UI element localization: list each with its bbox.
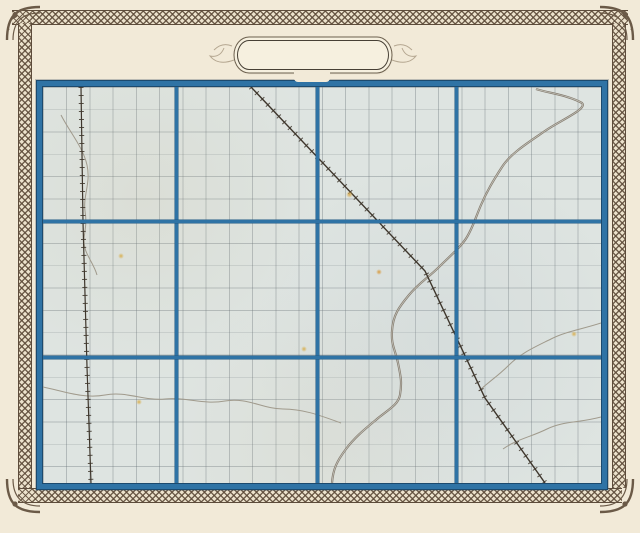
frame-band-left bbox=[18, 23, 32, 488]
frame-band-right bbox=[612, 23, 626, 488]
railroad-west-ties bbox=[81, 87, 91, 483]
map-canvas bbox=[42, 86, 602, 484]
corner-flourish-top-right bbox=[598, 4, 636, 42]
title-flourish-right bbox=[390, 38, 420, 68]
rivers-and-railroads bbox=[43, 87, 601, 483]
map-year bbox=[294, 70, 330, 82]
township-divider bbox=[455, 87, 458, 483]
creek bbox=[61, 115, 97, 275]
corner-flourish-top-left bbox=[4, 4, 42, 42]
title-flourish-left bbox=[206, 38, 236, 68]
township-divider bbox=[43, 220, 601, 223]
township-divider bbox=[43, 356, 601, 359]
atlas-page: { "title": { "prefix": "MAP OF", "name":… bbox=[0, 0, 640, 533]
map-frame bbox=[36, 80, 608, 490]
railroad-diagonal-ties bbox=[251, 87, 545, 483]
frame-band-bottom bbox=[18, 488, 622, 503]
township-divider bbox=[175, 87, 178, 483]
railroad-diagonal bbox=[251, 87, 545, 483]
frame-band-top bbox=[12, 10, 628, 25]
township-divider bbox=[316, 87, 319, 483]
title-cartouche bbox=[237, 40, 389, 70]
